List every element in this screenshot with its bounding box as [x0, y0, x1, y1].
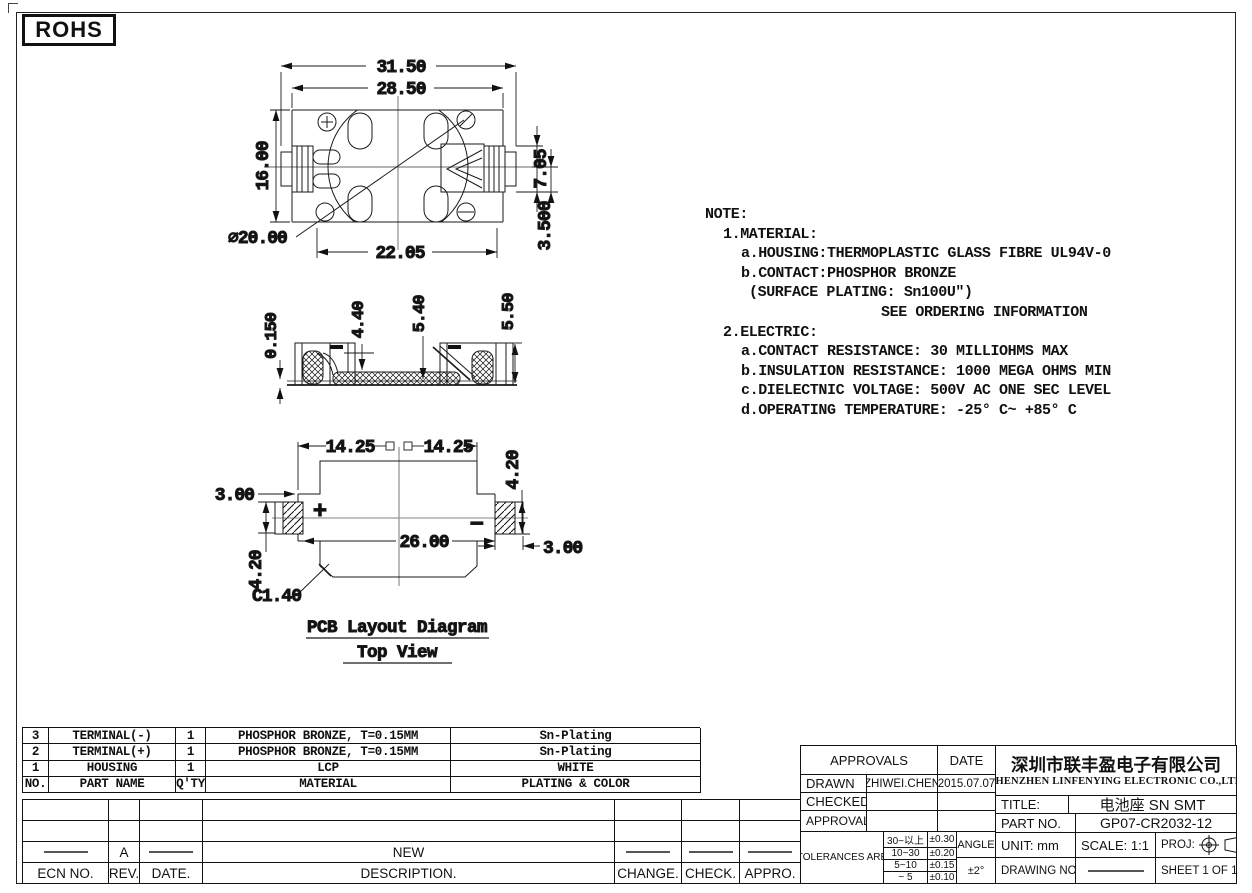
tol-value: ±0.20 — [928, 848, 957, 860]
dim-16-00: 16.00 — [254, 141, 274, 190]
tol-range: ~ 5 — [884, 872, 928, 884]
dim-31-50: 31.50 — [376, 58, 425, 78]
part-material: PHOSPHOR BRONZE, T=0.15MM — [206, 728, 451, 744]
parts-list-table: 3 TERMINAL(-) 1 PHOSPHOR BRONZE, T=0.15M… — [22, 727, 700, 793]
dim-0-150: 0.150 — [263, 312, 282, 359]
approvals-name — [866, 810, 938, 832]
checked-name — [866, 792, 938, 811]
part-no-value: GP07-CR2032-12 — [1075, 813, 1237, 833]
part-qty: 1 — [176, 761, 206, 777]
dim-7-05: 7.05 — [532, 149, 552, 188]
drawn-date: 2015.07.07 — [937, 774, 996, 793]
dash-line — [44, 851, 88, 853]
rev-header-appro: APPRO. — [740, 863, 801, 884]
note-line: NOTE: — [705, 205, 1145, 225]
approvals-date — [937, 810, 996, 832]
drawn-name: ZHIWEI.CHEN — [866, 774, 938, 793]
dash-line — [626, 851, 670, 853]
dim-14-25-right: 14.25 — [423, 438, 472, 458]
notes-block: NOTE: 1.MATERIAL: a.HOUSING:THERMOPLASTI… — [705, 205, 1145, 421]
dim-5-40: 5.40 — [411, 295, 430, 333]
rev-description: NEW — [203, 842, 615, 863]
dim-22-05: 22.05 — [375, 244, 424, 264]
parts-header-qty: Q'TY — [176, 777, 206, 793]
dim-3-00-top: 3.00 — [215, 486, 254, 506]
dim-c1-40: C1.40 — [252, 587, 301, 607]
tol-value: ±0.30 — [928, 832, 957, 848]
dash-line — [748, 851, 792, 853]
empty-cell — [682, 800, 740, 821]
tol-range: 5~10 — [884, 860, 928, 872]
top-view-drawing: 31.50 28.50 16.00 7.05 3.500 ⌀20.00 22.0… — [228, 58, 558, 264]
drawing-no-label: DRAWING NO. — [995, 857, 1076, 884]
dash-line — [149, 851, 193, 853]
dim-3-500: 3.500 — [536, 201, 556, 250]
empty-cell — [23, 800, 109, 821]
title-label: TITLE: — [995, 795, 1069, 814]
rev-header-ecn: ECN NO. — [23, 863, 109, 884]
dim-28-50: 28.50 — [376, 80, 425, 100]
sheet-cell: SHEET 1 OF 1 — [1155, 857, 1237, 884]
part-plating: Sn-Plating — [451, 728, 701, 744]
angle-label: ANGLE — [956, 831, 996, 858]
rev-header-description: DESCRIPTION. — [203, 863, 615, 884]
rev-letter: A — [109, 842, 140, 863]
tolerances-label: TOLERANCES ARE — [800, 831, 884, 884]
part-no: 3 — [23, 728, 49, 744]
drawn-label: DRAWN — [800, 774, 867, 793]
tolerance-table: 30~以上 ±0.30 10~30 ±0.20 5~10 ±0.15 ~ 5 ±… — [883, 831, 957, 884]
rev-header-check: CHECK. — [682, 863, 740, 884]
tol-range: 30~以上 — [884, 832, 928, 848]
pcb-caption-title: PCB Layout Diagram — [307, 618, 487, 638]
dim-26-00: 26.00 — [399, 533, 448, 553]
rev-appro-dash — [740, 842, 801, 863]
empty-cell — [140, 821, 203, 842]
note-line: d.OPERATING TEMPERATURE: -25° C~ +85° C — [705, 401, 1145, 421]
title-block: APPROVALS DATE DRAWN ZHIWEI.CHEN 2015.07… — [800, 745, 1237, 884]
part-qty: 1 — [176, 728, 206, 744]
part-plating: Sn-Plating — [451, 744, 701, 760]
note-line: c.DIELECTNIC VOLTAGE: 500V AC ONE SEC LE… — [705, 381, 1145, 401]
dim-4-20-right: 4.20 — [504, 450, 524, 489]
dash-line — [689, 851, 733, 853]
parts-header-name: PART NAME — [49, 777, 176, 793]
title-value: 电池座 SN SMT — [1068, 795, 1237, 814]
empty-cell — [109, 800, 140, 821]
rev-check-dash — [682, 842, 740, 863]
rev-change-dash — [615, 842, 682, 863]
empty-cell — [109, 821, 140, 842]
rev-header-date: DATE. — [140, 863, 203, 884]
empty-cell — [740, 800, 801, 821]
empty-cell — [140, 800, 203, 821]
tol-value: ±0.15 — [928, 860, 957, 872]
part-plating: WHITE — [451, 761, 701, 777]
checked-label: CHECKED — [800, 792, 867, 811]
part-no: 2 — [23, 744, 49, 760]
part-no: 1 — [23, 761, 49, 777]
dash-line — [1088, 870, 1144, 872]
drawing-no-value — [1075, 857, 1156, 884]
part-no-label: PART NO. — [995, 813, 1076, 833]
note-line: (SURFACE PLATING: Sn100U″) — [705, 283, 1145, 303]
part-qty: 1 — [176, 744, 206, 760]
parts-header-plating: PLATING & COLOR — [451, 777, 701, 793]
unit-cell: UNIT: mm — [995, 832, 1076, 858]
dim-14-25-left: 14.25 — [325, 438, 374, 458]
company-name-en: SHENZHEN LINFENYING ELECTRONIC CO.,LTD — [995, 776, 1237, 787]
empty-cell — [740, 821, 801, 842]
rev-header-rev: REV. — [109, 863, 140, 884]
parts-header-material: MATERIAL — [206, 777, 451, 793]
note-line: b.INSULATION RESISTANCE: 1000 MEGA OHMS … — [705, 362, 1145, 382]
empty-cell — [23, 821, 109, 842]
dim-4-20-left: 4.20 — [247, 550, 267, 589]
dim-4-40: 4.40 — [350, 301, 369, 339]
empty-cell — [615, 800, 682, 821]
revision-table: A NEW ECN NO. REV. DATE. DESCRIPTION. CH… — [22, 799, 800, 884]
rev-header-change: CHANGE. — [615, 863, 682, 884]
empty-cell — [615, 821, 682, 842]
part-name: TERMINAL(-) — [49, 728, 176, 744]
note-line: a.HOUSING:THERMOPLASTIC GLASS FIBRE UL94… — [705, 244, 1145, 264]
dim-dia-20-00: ⌀20.00 — [228, 229, 287, 249]
pcb-minus-mark: − — [470, 512, 484, 539]
note-line: SEE ORDERING INFORMATION — [705, 303, 1145, 323]
angle-value: ±2° — [956, 857, 996, 884]
projection-cell: PROJ: — [1155, 832, 1237, 858]
tol-value: ±0.10 — [928, 872, 957, 884]
company-cell: 深圳市联丰盈电子有限公司 SHENZHEN LINFENYING ELECTRO… — [995, 745, 1237, 796]
approvals-header: APPROVALS — [800, 745, 938, 775]
proj-label: PROJ: — [1161, 839, 1195, 851]
note-line: b.CONTACT:PHOSPHOR BRONZE — [705, 264, 1145, 284]
part-name: TERMINAL(+) — [49, 744, 176, 760]
note-line: 1.MATERIAL: — [705, 225, 1145, 245]
dim-5-50: 5.50 — [500, 293, 519, 331]
part-name: HOUSING — [49, 761, 176, 777]
company-name-cn: 深圳市联丰盈电子有限公司 — [1011, 754, 1221, 776]
tol-range: 10~30 — [884, 848, 928, 860]
dim-3-00-bottom: 3.00 — [543, 539, 582, 559]
part-material: PHOSPHOR BRONZE, T=0.15MM — [206, 744, 451, 760]
pcb-plus-mark: + — [313, 499, 327, 526]
approvals-label: APPROVALS — [800, 810, 867, 832]
rev-date-dash — [140, 842, 203, 863]
side-view-drawing: 0.150 4.40 5.40 5.50 — [263, 293, 522, 404]
note-line: a.CONTACT RESISTANCE: 30 MILLIOHMS MAX — [705, 342, 1145, 362]
checked-date — [937, 792, 996, 811]
note-line: 2.ELECTRIC: — [705, 323, 1145, 343]
pcb-layout-drawing: + − 14.25 14.25 3.00 4.20 26.00 3.00 4.2… — [215, 438, 583, 663]
parts-header-no: NO. — [23, 777, 49, 793]
rev-ecn-dash — [23, 842, 109, 863]
pcb-caption-subtitle: Top View — [357, 643, 438, 663]
drawing-sheet: ROHS — [0, 0, 1252, 893]
empty-cell — [682, 821, 740, 842]
empty-cell — [203, 800, 615, 821]
scale-cell: SCALE: 1:1 — [1075, 832, 1156, 858]
part-material: LCP — [206, 761, 451, 777]
date-header: DATE — [937, 745, 996, 775]
empty-cell — [203, 821, 615, 842]
third-angle-projection-icon — [1197, 834, 1236, 856]
